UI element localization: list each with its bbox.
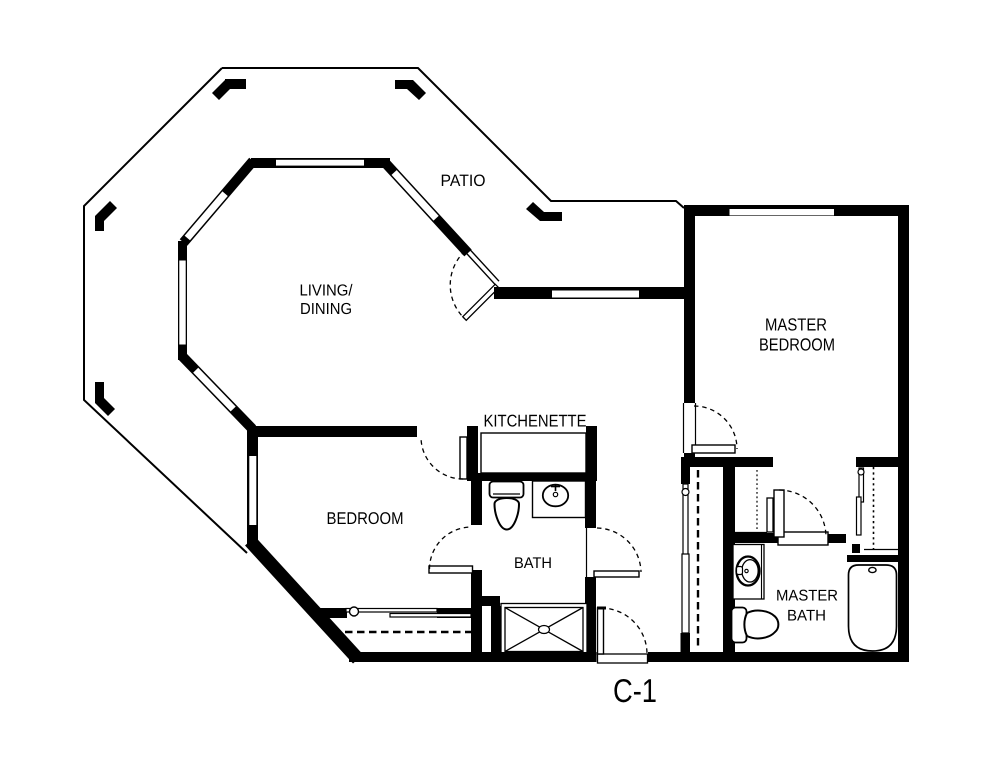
svg-text:BATH: BATH (787, 608, 826, 625)
svg-text:KITCHENETTE: KITCHENETTE (484, 412, 587, 431)
svg-text:C-1: C-1 (613, 672, 657, 709)
svg-text:LIVING/: LIVING/ (300, 283, 354, 300)
svg-text:PATIO: PATIO (441, 172, 486, 190)
svg-text:BATH: BATH (514, 555, 552, 572)
svg-text:DINING: DINING (300, 301, 352, 318)
svg-text:BEDROOM: BEDROOM (759, 335, 835, 355)
svg-text:BEDROOM: BEDROOM (327, 509, 404, 528)
svg-text:MASTER: MASTER (765, 315, 827, 335)
svg-text:MASTER: MASTER (776, 588, 838, 605)
